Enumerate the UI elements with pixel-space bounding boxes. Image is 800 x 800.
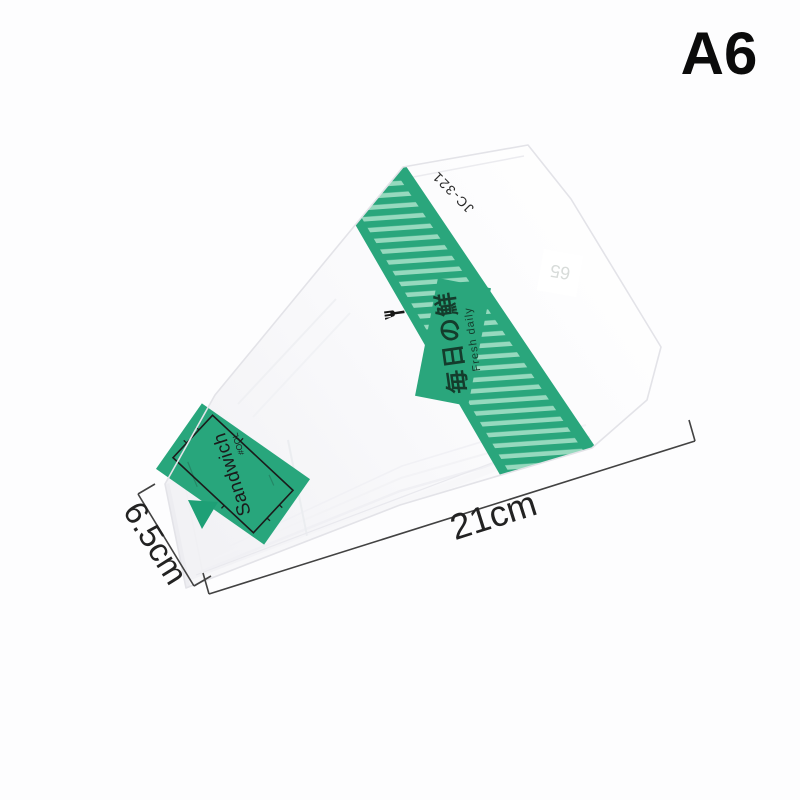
corner-badge-number: 65 [549, 260, 572, 283]
size-code-label: A6 [681, 20, 758, 87]
dimension-width-tick-top [138, 484, 155, 494]
dimension-length-tick-right [689, 420, 695, 441]
product-photo: JC-321 65 毎日の鮮 Fresh daily [0, 0, 800, 800]
dimension-length-label: 21cm [445, 482, 541, 548]
corner-badge: 65 [537, 249, 584, 297]
product-photo-canvas: JC-321 65 毎日の鮮 Fresh daily [0, 0, 800, 800]
